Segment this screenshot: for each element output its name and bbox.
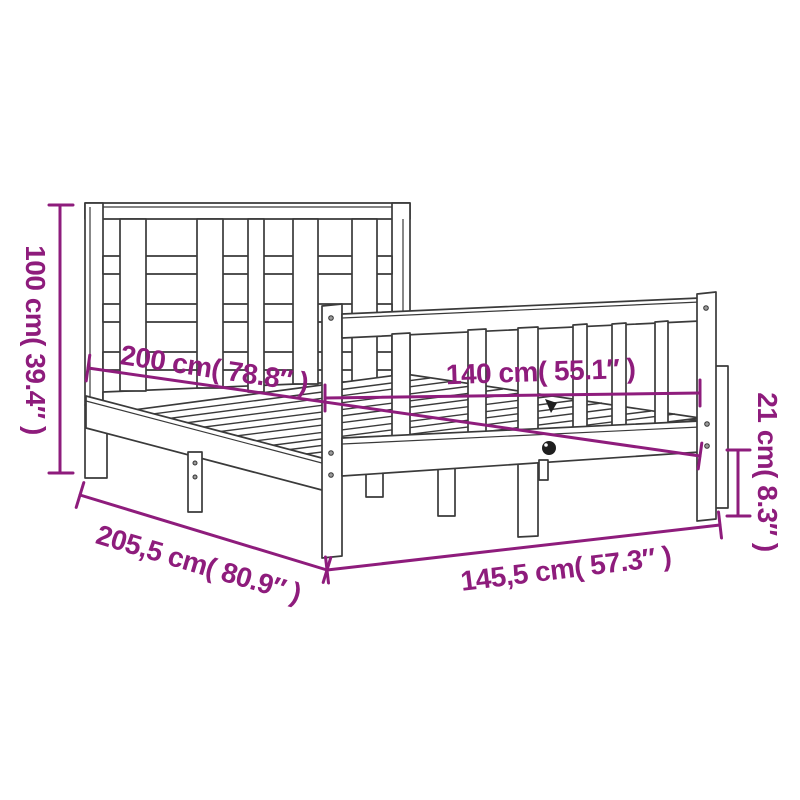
dim-width-total-label: 145,5 cm( 57.3″ ) — [459, 540, 673, 597]
headboard-top-rail — [85, 203, 410, 219]
screw — [705, 444, 710, 449]
footboard-left-post — [322, 304, 342, 558]
keyhole-detail — [542, 441, 556, 455]
center-leg-bracket — [539, 460, 548, 480]
dim-headboard-height-label: 100 cm( 39.4″ ) — [20, 245, 51, 435]
dimension-headboard-height: 100 cm( 39.4″ ) — [20, 205, 73, 473]
screw — [329, 451, 334, 456]
headboard-slat-3 — [293, 219, 318, 384]
bed-frame-illustration: 100 cm( 39.4″ ) 200 cm( 78.8″ ) 140 cm( … — [0, 0, 800, 800]
dim-cap — [719, 512, 722, 538]
footboard-baluster — [392, 333, 410, 438]
dimension-length-total: 205,5 cm( 80.9″ ) — [76, 483, 331, 609]
dimension-rail-height: 21 cm( 8.3″ ) — [727, 392, 783, 551]
headboard-slat-4 — [352, 219, 377, 381]
footboard-baluster — [655, 321, 668, 425]
dim-rail-height-label: 21 cm( 8.3″ ) — [752, 392, 783, 551]
screw — [705, 422, 710, 427]
dim-width-inner-label: 140 cm( 55.1″ ) — [445, 353, 636, 391]
dim-cap — [326, 557, 329, 583]
screw — [193, 461, 197, 465]
screw — [329, 316, 334, 321]
screw — [193, 475, 197, 479]
screw — [329, 473, 334, 478]
bed-frame-dimension-diagram: 100 cm( 39.4″ ) 200 cm( 78.8″ ) 140 cm( … — [0, 0, 800, 800]
keyhole-highlight — [544, 443, 548, 447]
screw — [704, 306, 709, 311]
